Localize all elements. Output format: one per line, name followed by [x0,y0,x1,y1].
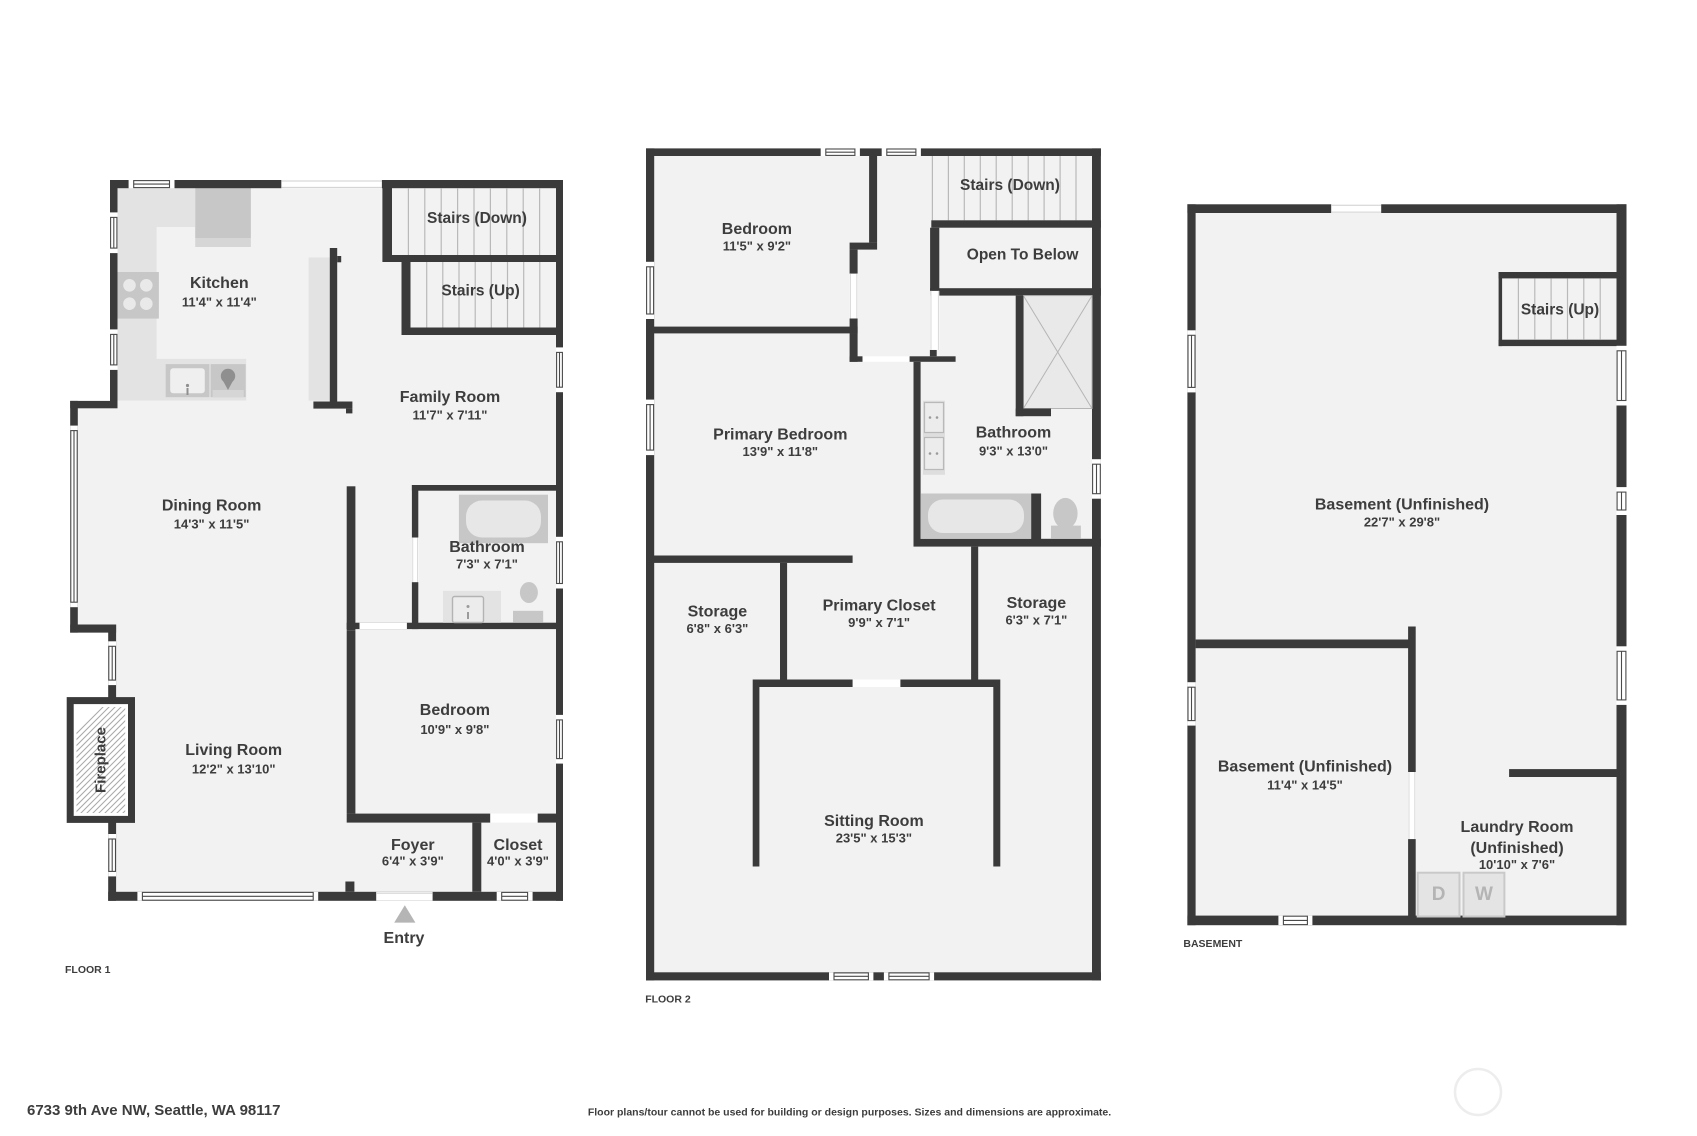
svg-text:Bathroom: Bathroom [976,425,1052,442]
svg-text:Floor plans/tour cannot be use: Floor plans/tour cannot be used for buil… [588,1107,1111,1119]
svg-text:Open To Below: Open To Below [967,247,1080,264]
svg-text:11'4" x 14'5": 11'4" x 14'5" [1267,778,1343,793]
svg-text:Stairs (Up): Stairs (Up) [1521,302,1599,319]
svg-text:Primary Closet: Primary Closet [823,597,937,614]
svg-text:12'2" x 13'10": 12'2" x 13'10" [192,762,276,777]
svg-text:Closet: Closet [494,837,544,854]
svg-text:Laundry Room: Laundry Room [1461,819,1574,836]
svg-text:Living Room: Living Room [185,742,282,759]
svg-text:11'5" x 9'2": 11'5" x 9'2" [723,238,791,253]
svg-text:D: D [1432,884,1446,905]
svg-text:Foyer: Foyer [391,837,435,854]
svg-text:Basement (Unfinished): Basement (Unfinished) [1218,759,1392,776]
svg-text:(Unfinished): (Unfinished) [1470,840,1563,857]
svg-text:6'4" x 3'9": 6'4" x 3'9" [382,854,444,869]
svg-text:9'9" x 7'1": 9'9" x 7'1" [848,615,910,630]
svg-text:6733 9th Ave NW, Seattle, WA 9: 6733 9th Ave NW, Seattle, WA 98117 [27,1102,280,1119]
svg-text:Fireplace: Fireplace [92,727,109,793]
svg-text:Storage: Storage [1007,595,1067,612]
svg-text:4'0" x 3'9": 4'0" x 3'9" [487,854,549,869]
svg-text:BASEMENT: BASEMENT [1183,938,1243,950]
svg-text:W: W [1475,884,1493,905]
svg-text:22'7" x 29'8": 22'7" x 29'8" [1364,515,1440,530]
svg-text:11'7" x 7'11": 11'7" x 7'11" [413,408,488,423]
svg-text:Stairs (Down): Stairs (Down) [427,210,527,227]
svg-text:Stairs (Up): Stairs (Up) [441,283,519,300]
svg-text:Bedroom: Bedroom [722,221,792,238]
svg-text:FLOOR 1: FLOOR 1 [65,964,111,976]
svg-text:Stairs (Down): Stairs (Down) [960,177,1060,194]
svg-text:Bathroom: Bathroom [449,539,525,556]
svg-text:Primary Bedroom: Primary Bedroom [713,427,847,444]
svg-text:14'3" x 11'5": 14'3" x 11'5" [174,516,250,531]
svg-text:6'3" x 7'1": 6'3" x 7'1" [1005,613,1067,628]
svg-text:Sitting Room: Sitting Room [824,813,924,830]
svg-text:Family Room: Family Room [400,389,500,406]
svg-text:9'3" x 13'0": 9'3" x 13'0" [979,443,1048,458]
svg-text:13'9" x 11'8": 13'9" x 11'8" [742,444,818,459]
svg-text:Basement (Unfinished): Basement (Unfinished) [1315,497,1489,514]
svg-text:11'4" x 11'4": 11'4" x 11'4" [182,295,257,310]
svg-text:6'8" x 6'3": 6'8" x 6'3" [686,621,748,636]
svg-text:FLOOR 2: FLOOR 2 [645,993,691,1005]
svg-text:Entry: Entry [384,930,425,947]
svg-text:Dining Room: Dining Room [162,498,262,515]
svg-text:10'9" x 9'8": 10'9" x 9'8" [420,722,489,737]
svg-text:23'5" x 15'3": 23'5" x 15'3" [836,831,912,846]
svg-text:Bedroom: Bedroom [420,702,490,719]
svg-text:10'10" x 7'6": 10'10" x 7'6" [1479,857,1555,872]
svg-text:Storage: Storage [688,603,748,620]
svg-text:7'3" x 7'1": 7'3" x 7'1" [456,556,518,571]
svg-text:Kitchen: Kitchen [190,275,249,292]
